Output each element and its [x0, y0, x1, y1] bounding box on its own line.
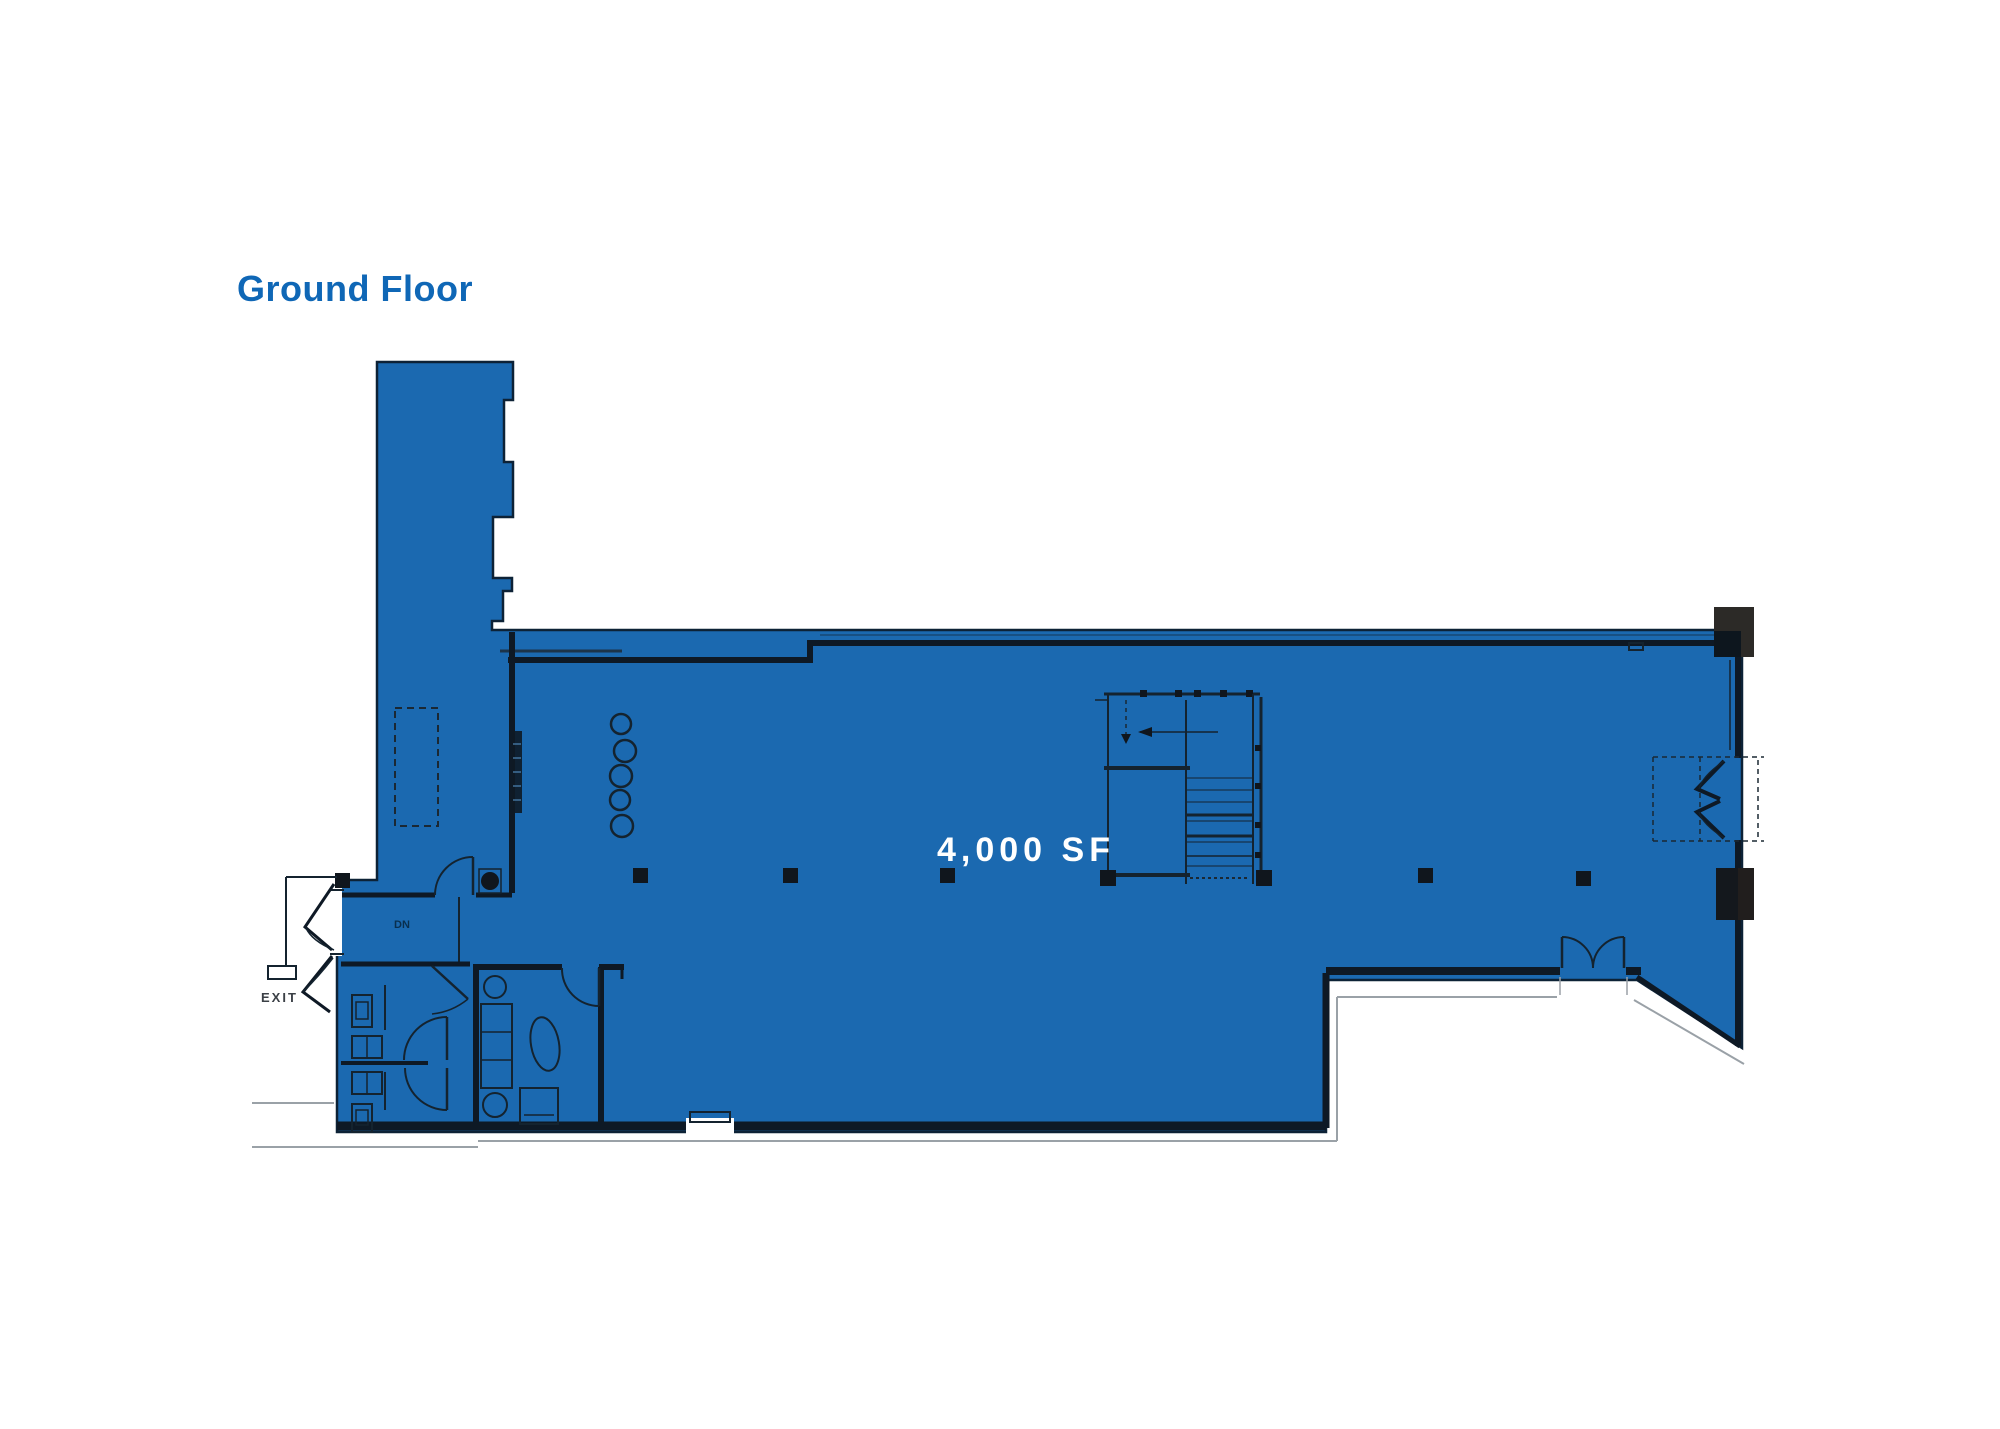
exit-label: EXIT — [261, 990, 298, 1005]
floor-plan-page: EXIT DN — [0, 0, 2000, 1429]
exit-vestibule: EXIT — [261, 877, 344, 1012]
highlighted-floor-area — [337, 362, 1742, 1132]
area-size-label: 4,000 SF — [937, 831, 1115, 869]
page-title: Ground Floor — [237, 268, 473, 309]
door-hinge-strip — [512, 731, 522, 813]
floor-plan-canvas: EXIT DN — [0, 0, 2000, 1429]
stair-down-label: DN — [394, 919, 410, 931]
